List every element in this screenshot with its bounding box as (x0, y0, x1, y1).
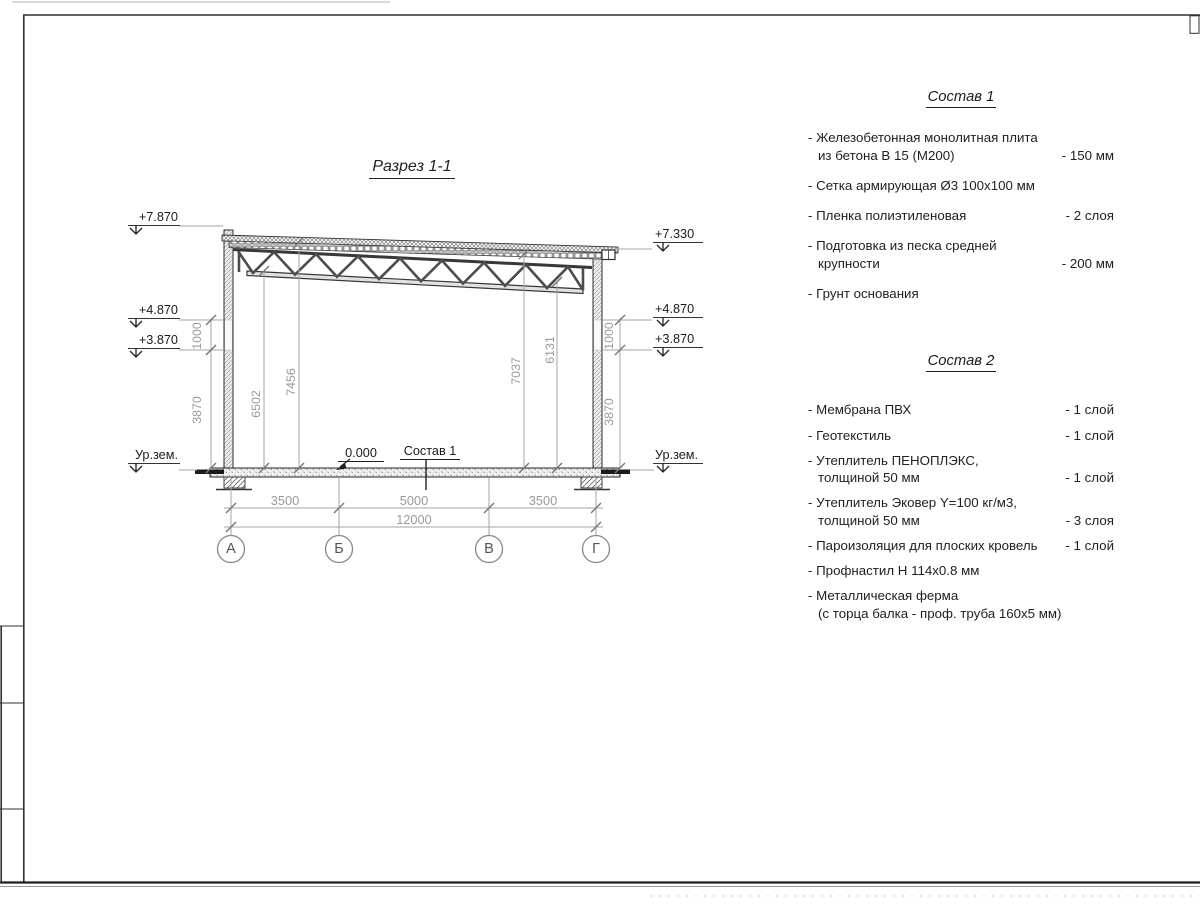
level-arrow-icon (128, 348, 144, 359)
item-label: - Металлическая ферма (с торца балка - п… (808, 587, 1061, 622)
composition-list-1: Состав 1 - Железобетонная монолитная пли… (808, 88, 1114, 315)
axis-label: В (474, 541, 504, 557)
list-item: - Профнастил Н 114x0.8 мм (808, 562, 1114, 579)
section-title: Разрез 1-1 (342, 158, 482, 179)
list-item: - Утеплитель ПЕНОПЛЭКС, толщиной 50 мм -… (808, 452, 1114, 487)
dimension-label: 3870 (190, 378, 204, 442)
item-label: - Профнастил Н 114x0.8 мм (808, 562, 979, 579)
item-label: - Утеплитель Эковер Y=100 кг/м3, толщино… (808, 494, 1017, 529)
floor-slab (210, 468, 620, 477)
level-arrow-icon (128, 225, 144, 236)
list-item: - Пароизоляция для плоских кровель - 1 с… (808, 537, 1114, 554)
level-arrow-icon (655, 347, 671, 358)
item-value: - 200 мм (1054, 255, 1114, 272)
list-item: - Железобетонная монолитная плита из бет… (808, 129, 1114, 164)
ground-level-mark: Ур.зем. (128, 448, 180, 464)
item-label: - Утеплитель ПЕНОПЛЭКС, толщиной 50 мм (808, 452, 979, 487)
composition-list-2: Состав 2 - Мембрана ПВХ - 1 слой - Геоте… (808, 352, 1114, 630)
dimension-label: 6131 (543, 318, 557, 382)
item-label: - Пленка полиэтиленовая (808, 207, 966, 224)
dimension-label: 5000 (384, 494, 444, 507)
item-label: - Подготовка из песка средней крупности (808, 237, 997, 272)
elevation-mark: +4.870 (653, 302, 703, 318)
item-value: - 1 слой (1057, 401, 1114, 418)
dimension-label: 3500 (513, 494, 573, 507)
list-item: - Подготовка из песка средней крупности … (808, 237, 1114, 272)
drawing-sheet: Разрез 1-1 +7.870 +4.870 +3.870 Ур.зем. … (0, 0, 1200, 900)
list-item: - Пленка полиэтиленовая - 2 слоя (808, 207, 1114, 224)
item-label: - Геотекстиль (808, 427, 893, 444)
ground-level-mark: Ур.зем. (653, 448, 703, 464)
list-item: - Грунт основания (808, 285, 1114, 302)
item-label: - Сетка армирующая Ø3 100x100 мм (808, 177, 1035, 194)
composition-2-title: Состав 2 (808, 352, 1114, 371)
dimension-label: 6502 (249, 372, 263, 436)
floor-callout-label: Состав 1 (400, 444, 460, 460)
dimension-label: 3500 (255, 494, 315, 507)
list-item: - Сетка армирующая Ø3 100x100 мм (808, 177, 1114, 194)
axis-label: А (216, 541, 246, 557)
list-item: - Мембрана ПВХ - 1 слой (808, 401, 1114, 418)
footing-left (224, 477, 245, 488)
dimension-label: 7037 (509, 339, 523, 403)
dimension-label: 12000 (379, 513, 449, 526)
elevation-mark: +7.870 (128, 210, 180, 226)
dimension-label: 7456 (284, 350, 298, 414)
elevation-mark: +7.330 (653, 227, 703, 243)
level-arrow-icon (655, 463, 671, 474)
level-arrow-icon (128, 463, 144, 474)
level-arrow-icon (128, 318, 144, 329)
item-value: - 150 мм (1054, 147, 1114, 164)
item-label: - Грунт основания (808, 285, 919, 302)
axis-label: Б (324, 541, 354, 557)
dimension-label: 1000 (602, 304, 616, 368)
item-value: - 2 слоя (1058, 207, 1114, 224)
level-arrow-icon (655, 242, 671, 253)
elevation-mark: +3.870 (653, 332, 703, 348)
right-wall (593, 256, 602, 470)
zero-level-label: 0.000 (338, 446, 384, 462)
dimension-label: 3870 (602, 380, 616, 444)
item-value: - 1 слой (1057, 537, 1114, 554)
item-value: - 1 слой (1057, 469, 1114, 486)
elevation-mark: +4.870 (128, 303, 180, 319)
item-label: - Пароизоляция для плоских кровель (808, 537, 1038, 554)
level-arrow-icon (655, 317, 671, 328)
list-item: - Металлическая ферма (с торца балка - п… (808, 587, 1114, 622)
elevation-mark: +3.870 (128, 333, 180, 349)
footing-right (581, 477, 602, 488)
axis-label: Г (581, 541, 611, 557)
list-item: - Утеплитель Эковер Y=100 кг/м3, толщино… (808, 494, 1114, 529)
item-label: - Железобетонная монолитная плита из бет… (808, 129, 1038, 164)
item-value: - 3 слоя (1058, 512, 1114, 529)
dimension-label: 1000 (190, 304, 204, 368)
item-label: - Мембрана ПВХ (808, 401, 911, 418)
section-title-text: Разрез 1-1 (369, 158, 454, 179)
list-item: - Геотекстиль - 1 слой (808, 427, 1114, 444)
composition-1-title: Состав 1 (808, 88, 1114, 107)
axis-bubbles (218, 536, 610, 563)
item-value: - 1 слой (1057, 427, 1114, 444)
